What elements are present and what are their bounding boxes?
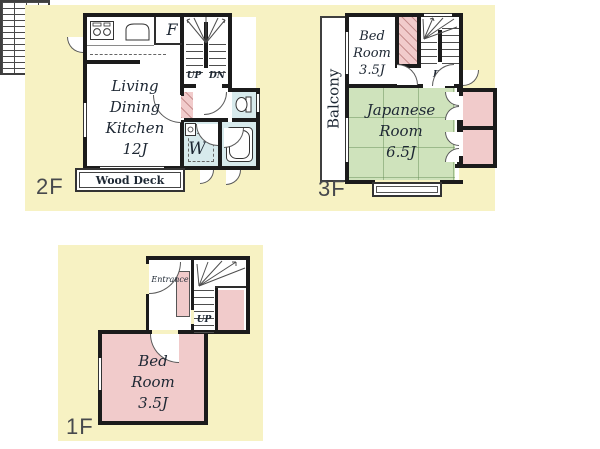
stair-treads	[421, 42, 437, 64]
wall-segment	[459, 88, 497, 92]
stair-treads	[442, 28, 459, 64]
toilet-icon	[235, 95, 253, 114]
floor-label-2f: 2F	[36, 174, 64, 200]
wall-segment	[232, 118, 256, 122]
counter-edge	[87, 45, 154, 46]
wall-segment	[212, 330, 250, 334]
wall-segment	[228, 13, 232, 92]
wall-segment	[457, 120, 463, 132]
sink-icon	[122, 23, 152, 41]
closet-f-label: F	[163, 20, 181, 39]
wall-segment	[222, 84, 228, 88]
japanese-line: Room	[379, 121, 423, 142]
3f-closet-b	[463, 130, 493, 164]
window	[424, 13, 452, 17]
wall-segment	[204, 330, 208, 425]
1f-closet	[218, 290, 244, 332]
wall-segment	[455, 164, 497, 168]
washbasin-icon	[185, 123, 196, 136]
wall-segment	[146, 294, 149, 334]
ldk-line: Dining	[110, 97, 161, 118]
japanese-line: 6.5J	[386, 142, 416, 163]
bedroom-3f-label: Bed Room 3.5J	[348, 26, 396, 80]
bedroom-1f-label: Bed Room 3.5J	[108, 350, 198, 414]
floor-label-1f: 1F	[66, 414, 94, 440]
stair-fan-icon	[196, 260, 246, 288]
ldk-line: 12J	[122, 139, 147, 160]
stair-fan-icon	[184, 17, 228, 43]
balcony-label: Balcony	[320, 16, 347, 182]
wood-deck-label: Wood Deck	[79, 172, 181, 188]
floorplan-page: UP DN F W Living Dining Kitchen	[0, 0, 600, 449]
wall-segment	[218, 122, 222, 166]
stove-icon	[90, 21, 114, 40]
ldk-line: Living	[111, 76, 158, 97]
ldk-room-label: Living Dining Kitchen 12J	[95, 74, 175, 162]
ldk-line: Kitchen	[106, 118, 165, 139]
bedroom-line: 3.5J	[359, 62, 385, 79]
window	[98, 358, 102, 390]
japanese-line: Japanese	[367, 100, 436, 121]
wall-segment	[98, 421, 208, 425]
wall-segment	[98, 330, 152, 334]
bedroom-line: Bed	[138, 351, 168, 372]
3f-closet-a	[463, 92, 493, 126]
bedroom-line: Room	[131, 372, 175, 393]
wall-segment	[83, 13, 87, 170]
wall-segment	[463, 126, 493, 130]
closet-wall	[154, 17, 156, 43]
wall-segment	[440, 180, 463, 184]
bedroom-line: Bed	[359, 28, 385, 45]
stairs-dn-label: DN	[206, 70, 228, 82]
bedroom-line: 3.5J	[138, 393, 168, 414]
closet-wall	[154, 43, 182, 45]
window-bay-inner	[376, 186, 438, 193]
counter-dashed-line	[90, 54, 166, 55]
window-bay	[372, 182, 442, 197]
bedroom-line: Room	[353, 45, 391, 62]
window	[83, 103, 87, 137]
wall-segment	[87, 60, 140, 64]
entrance-label: Entrance	[149, 274, 191, 285]
stair-treads	[194, 290, 214, 334]
wall-segment	[493, 88, 497, 168]
wall-segment	[345, 180, 375, 184]
stairs-up-label: UP	[184, 70, 204, 82]
wall-segment	[246, 256, 250, 334]
3f-bedroom-closet	[399, 17, 417, 64]
japanese-room-label: Japanese Room 6.5J	[357, 98, 445, 164]
window	[256, 94, 260, 112]
wall-segment	[184, 84, 196, 88]
floor-label-3f: 3F	[318, 176, 346, 202]
wood-deck: Wood Deck	[75, 168, 185, 192]
wall-segment	[180, 120, 184, 166]
stairs-up-label: UP	[192, 314, 216, 326]
